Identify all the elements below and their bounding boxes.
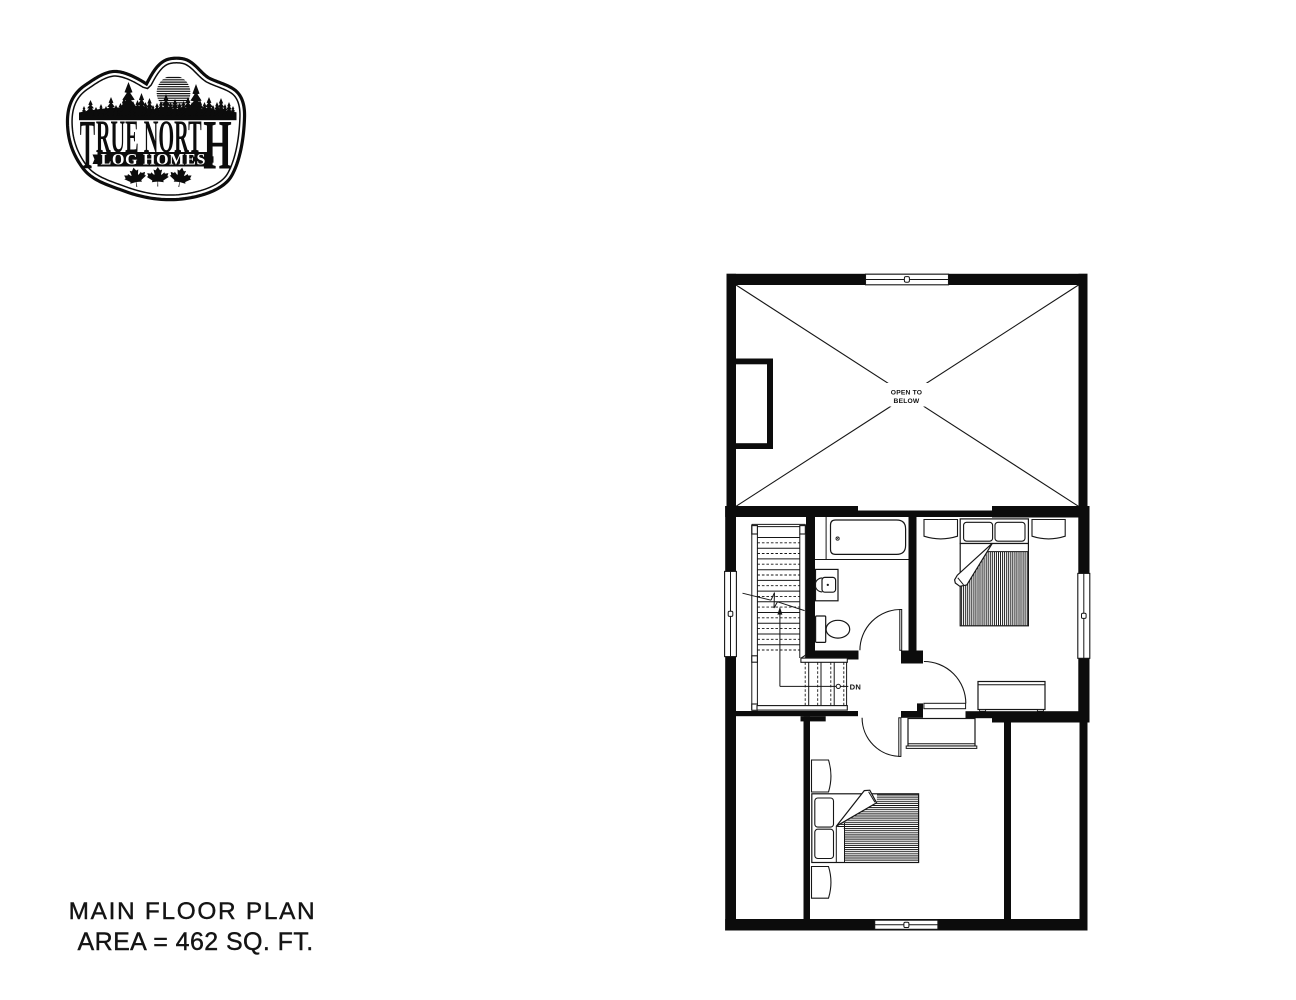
svg-text:OPEN TO: OPEN TO [891, 390, 922, 397]
svg-text:LOG HOMES: LOG HOMES [101, 151, 206, 168]
svg-text:T: T [80, 107, 95, 185]
svg-text:AREA = 462 SQ. FT.: AREA = 462 SQ. FT. [78, 928, 314, 956]
svg-text:DN: DN [850, 682, 862, 691]
svg-text:H: H [203, 106, 231, 184]
svg-text:MAIN FLOOR PLAN: MAIN FLOOR PLAN [69, 898, 317, 925]
svg-text:BELOW: BELOW [894, 398, 920, 405]
